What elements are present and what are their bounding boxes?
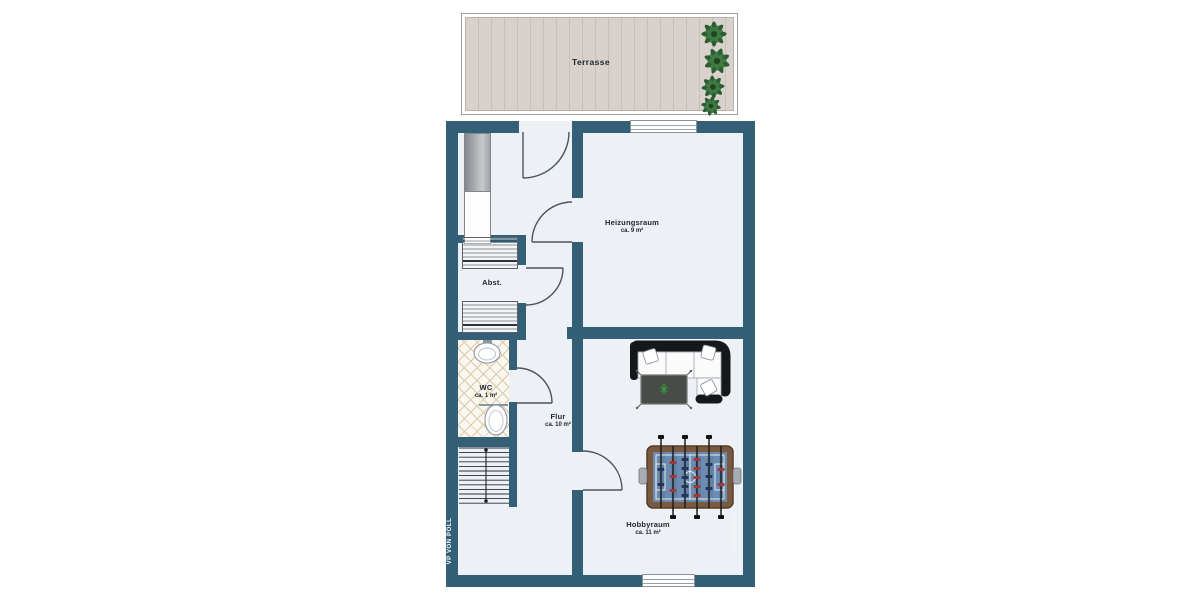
room-area: ca. 11 m² [588, 530, 708, 537]
room-label-hobbyraum: Hobbyraum ca. 11 m² [588, 520, 708, 537]
room-area: ca. 1 m² [460, 393, 512, 400]
watermark-vertical: VP VON POLL [732, 493, 742, 573]
door-terrace [523, 132, 569, 178]
plan-symbols-layer [0, 0, 1200, 600]
door-heizungsraum [532, 202, 572, 242]
door-hobbyraum [583, 451, 622, 490]
staircase [459, 448, 509, 503]
floor-plan-canvas: Terrasse [0, 0, 1200, 600]
room-label-flur: Flur ca. 10 m² [522, 412, 594, 429]
coffee-table [636, 370, 692, 409]
room-name: Abst. [460, 278, 524, 287]
room-name: Hobbyraum [588, 520, 708, 529]
room-name: WC [460, 383, 512, 392]
room-area: ca. 9 m² [572, 228, 692, 235]
toilet-icon [485, 405, 507, 435]
foosball-handle-right [733, 468, 741, 484]
door-wc [517, 368, 552, 403]
room-area: ca. 10 m² [522, 422, 594, 429]
sofa-pillow [700, 345, 716, 361]
room-label-wc: WC ca. 1 m² [460, 383, 512, 400]
foosball-table [639, 435, 741, 519]
room-label-heizungsraum: Heizungsraum ca. 9 m² [572, 218, 692, 235]
door-abstellraum [526, 268, 563, 305]
room-name: Heizungsraum [572, 218, 692, 227]
plant-icon [701, 21, 726, 46]
plant-icon-group [697, 21, 734, 117]
door-symbols [517, 132, 622, 490]
foosball-handle-left [639, 468, 647, 484]
brand-logo-vertical: VP VON POLL [447, 501, 457, 581]
plant-icon [700, 95, 723, 118]
room-name: Flur [522, 412, 594, 421]
plant-icon [700, 44, 734, 78]
room-label-abstellraum: Abst. [460, 278, 524, 287]
